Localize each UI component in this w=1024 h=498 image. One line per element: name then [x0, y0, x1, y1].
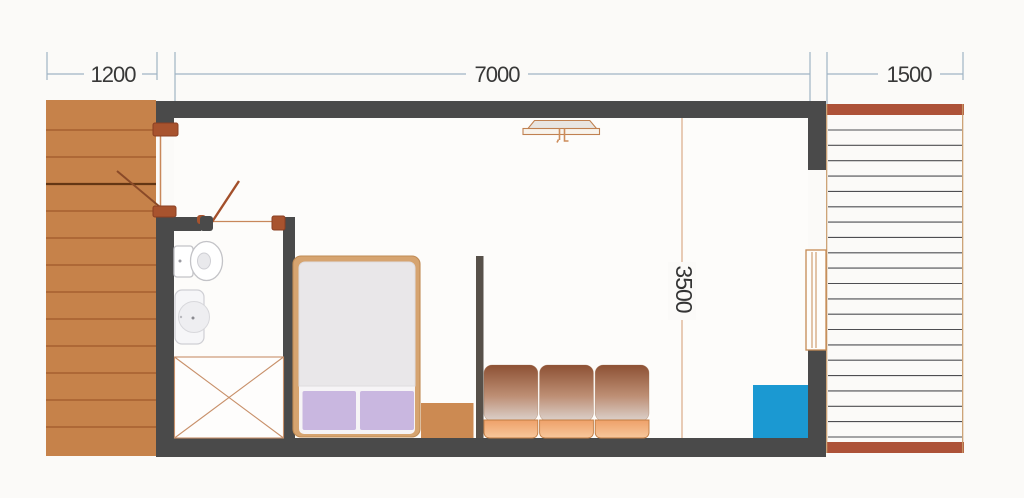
svg-text:3500: 3500 — [671, 265, 697, 312]
svg-text:7000: 7000 — [475, 62, 521, 87]
svg-text:1500: 1500 — [887, 62, 933, 87]
svg-text:1200: 1200 — [91, 62, 137, 87]
